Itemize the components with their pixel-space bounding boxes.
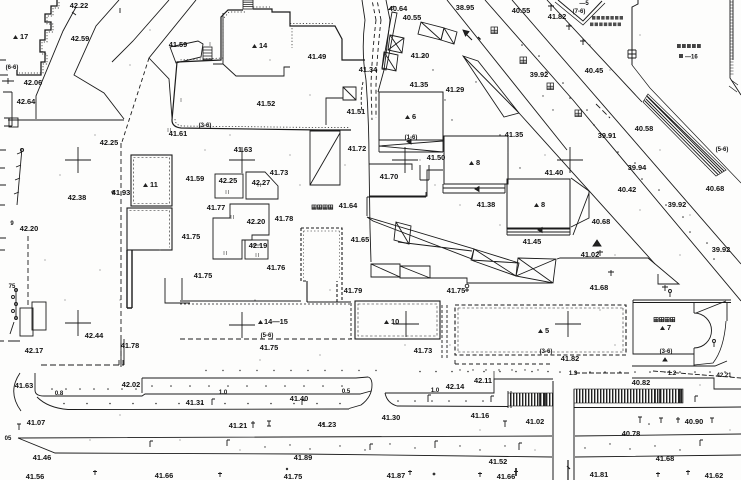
svg-text:41.49: 41.49 — [308, 52, 327, 61]
svg-text:41.46: 41.46 — [33, 453, 52, 462]
svg-text:41.70: 41.70 — [380, 172, 399, 181]
svg-text:42.25: 42.25 — [100, 138, 119, 147]
svg-text:41.79: 41.79 — [344, 286, 363, 295]
svg-text:41.77: 41.77 — [207, 203, 226, 212]
svg-text:41.62: 41.62 — [705, 471, 724, 480]
svg-text:42.59: 42.59 — [71, 34, 90, 43]
svg-text:41.02: 41.02 — [526, 417, 545, 426]
svg-text:39.92: 39.92 — [668, 200, 687, 209]
svg-text:41.56: 41.56 — [26, 472, 45, 480]
svg-text:41.81: 41.81 — [590, 470, 609, 479]
svg-text:7: 7 — [667, 323, 671, 332]
svg-text:41.82: 41.82 — [548, 12, 567, 21]
svg-text:(6-6): (6-6) — [6, 65, 19, 71]
svg-text:42.11: 42.11 — [474, 376, 492, 385]
svg-text:5: 5 — [545, 326, 549, 335]
svg-text:05: 05 — [5, 436, 12, 442]
svg-text:(3-6): (3-6) — [660, 349, 673, 355]
svg-text:41.20: 41.20 — [411, 51, 430, 60]
svg-text:(3-6): (3-6) — [199, 123, 212, 129]
svg-text:41.78: 41.78 — [121, 341, 140, 350]
svg-text:40.45: 40.45 — [585, 66, 604, 75]
svg-text:41.66: 41.66 — [155, 471, 174, 480]
svg-text:38.95: 38.95 — [456, 3, 475, 12]
svg-text:75: 75 — [9, 284, 16, 290]
svg-text:41.82: 41.82 — [561, 354, 580, 363]
svg-text:41.75: 41.75 — [447, 286, 466, 295]
svg-text:41.59: 41.59 — [186, 174, 205, 183]
svg-text:42.20: 42.20 — [20, 224, 39, 233]
svg-text:41.66: 41.66 — [497, 472, 516, 480]
svg-text:40.78: 40.78 — [622, 429, 641, 438]
svg-text:41.68: 41.68 — [656, 454, 675, 463]
svg-text:41.30: 41.30 — [382, 413, 401, 422]
svg-text:41.73: 41.73 — [270, 168, 289, 177]
svg-text:42.17: 42.17 — [25, 346, 44, 355]
svg-text:41.07: 41.07 — [27, 418, 46, 427]
svg-text:41.29: 41.29 — [446, 85, 465, 94]
svg-text:1.3: 1.3 — [569, 371, 578, 377]
svg-text:41.73: 41.73 — [414, 346, 433, 355]
svg-text:—5: —5 — [579, 1, 589, 7]
svg-text:41.38: 41.38 — [477, 200, 496, 209]
svg-text:39.91: 39.91 — [598, 131, 617, 140]
svg-text:39.94: 39.94 — [628, 163, 647, 172]
svg-text:40.90: 40.90 — [685, 417, 704, 426]
svg-text:39.92: 39.92 — [530, 70, 549, 79]
svg-text:41.63: 41.63 — [15, 381, 34, 390]
svg-text:41.72: 41.72 — [348, 144, 367, 153]
svg-text:41.50: 41.50 — [427, 153, 446, 162]
svg-text:41.59: 41.59 — [169, 40, 188, 49]
svg-text:40.55: 40.55 — [512, 6, 531, 15]
svg-text:42.20: 42.20 — [247, 217, 266, 226]
svg-text:41.35: 41.35 — [505, 130, 524, 139]
svg-text:14: 14 — [259, 41, 268, 50]
svg-text:42.21: 42.21 — [716, 373, 732, 379]
svg-text:41.16: 41.16 — [471, 411, 490, 420]
svg-text:41.40: 41.40 — [290, 394, 309, 403]
svg-text:17: 17 — [20, 32, 28, 41]
svg-text:41.34: 41.34 — [359, 65, 378, 74]
svg-text:6: 6 — [412, 112, 416, 121]
svg-text:14—15: 14—15 — [264, 317, 288, 326]
svg-text:11: 11 — [150, 180, 158, 189]
svg-text:(5-6): (5-6) — [716, 147, 729, 153]
svg-text:40.68: 40.68 — [706, 184, 725, 193]
svg-text:42.27: 42.27 — [252, 178, 271, 187]
svg-text:40.82: 40.82 — [632, 378, 651, 387]
svg-text:1.2: 1.2 — [668, 371, 677, 377]
svg-text:(3-6): (3-6) — [540, 349, 553, 355]
svg-text:42.06: 42.06 — [24, 78, 43, 87]
svg-text:42.64: 42.64 — [17, 97, 36, 106]
svg-text:41.75: 41.75 — [194, 271, 213, 280]
svg-text:—16: —16 — [685, 55, 698, 61]
svg-text:41.87: 41.87 — [387, 471, 406, 480]
svg-text:40.68: 40.68 — [592, 217, 611, 226]
svg-text:40.64: 40.64 — [389, 4, 408, 13]
svg-text:8: 8 — [476, 158, 480, 167]
svg-text:42.38: 42.38 — [68, 193, 87, 202]
svg-text:41.61: 41.61 — [169, 129, 188, 138]
svg-text:42.14: 42.14 — [446, 382, 465, 391]
svg-text:41.35: 41.35 — [410, 80, 429, 89]
svg-text:41.93: 41.93 — [112, 188, 131, 197]
svg-text:39.92: 39.92 — [712, 245, 731, 254]
svg-text:0.5: 0.5 — [342, 389, 351, 395]
svg-text:42.44: 42.44 — [85, 331, 104, 340]
svg-text:41.76: 41.76 — [267, 263, 286, 272]
svg-text:41.75: 41.75 — [182, 232, 201, 241]
svg-text:40.58: 40.58 — [635, 124, 654, 133]
svg-text:41.75: 41.75 — [260, 343, 279, 352]
svg-text:41.63: 41.63 — [234, 145, 253, 154]
svg-text:42.19: 42.19 — [249, 241, 268, 250]
svg-text:0.8: 0.8 — [55, 391, 64, 397]
svg-text:41.89: 41.89 — [294, 453, 313, 462]
svg-text:41.40: 41.40 — [545, 168, 564, 177]
svg-text:42.02: 42.02 — [122, 380, 141, 389]
svg-text:41.78: 41.78 — [275, 214, 294, 223]
svg-text:10: 10 — [391, 317, 399, 326]
svg-text:1.0: 1.0 — [219, 390, 228, 396]
svg-text:41.75: 41.75 — [284, 472, 303, 480]
svg-text:(7-6): (7-6) — [573, 9, 586, 15]
svg-text:(5-6): (5-6) — [261, 333, 274, 339]
svg-text:41.45: 41.45 — [523, 237, 542, 246]
svg-text:41.68: 41.68 — [590, 283, 609, 292]
svg-text:41.52: 41.52 — [257, 99, 276, 108]
svg-text:41.65: 41.65 — [351, 235, 370, 244]
svg-text:1.0: 1.0 — [431, 388, 440, 394]
svg-text:41.21: 41.21 — [229, 421, 248, 430]
svg-text:(1-6): (1-6) — [405, 135, 418, 141]
svg-text:8: 8 — [541, 200, 545, 209]
svg-text:41.51: 41.51 — [347, 107, 366, 116]
svg-text:40.42: 40.42 — [618, 185, 637, 194]
svg-text:42.22: 42.22 — [70, 1, 89, 10]
svg-text:41.02: 41.02 — [581, 250, 600, 259]
svg-text:40.55: 40.55 — [403, 13, 422, 22]
svg-text:41.23: 41.23 — [318, 420, 337, 429]
svg-text:42.25: 42.25 — [219, 176, 238, 185]
svg-text:41.31: 41.31 — [186, 398, 205, 407]
svg-text:41.52: 41.52 — [489, 457, 508, 466]
svg-text:41.64: 41.64 — [339, 201, 358, 210]
